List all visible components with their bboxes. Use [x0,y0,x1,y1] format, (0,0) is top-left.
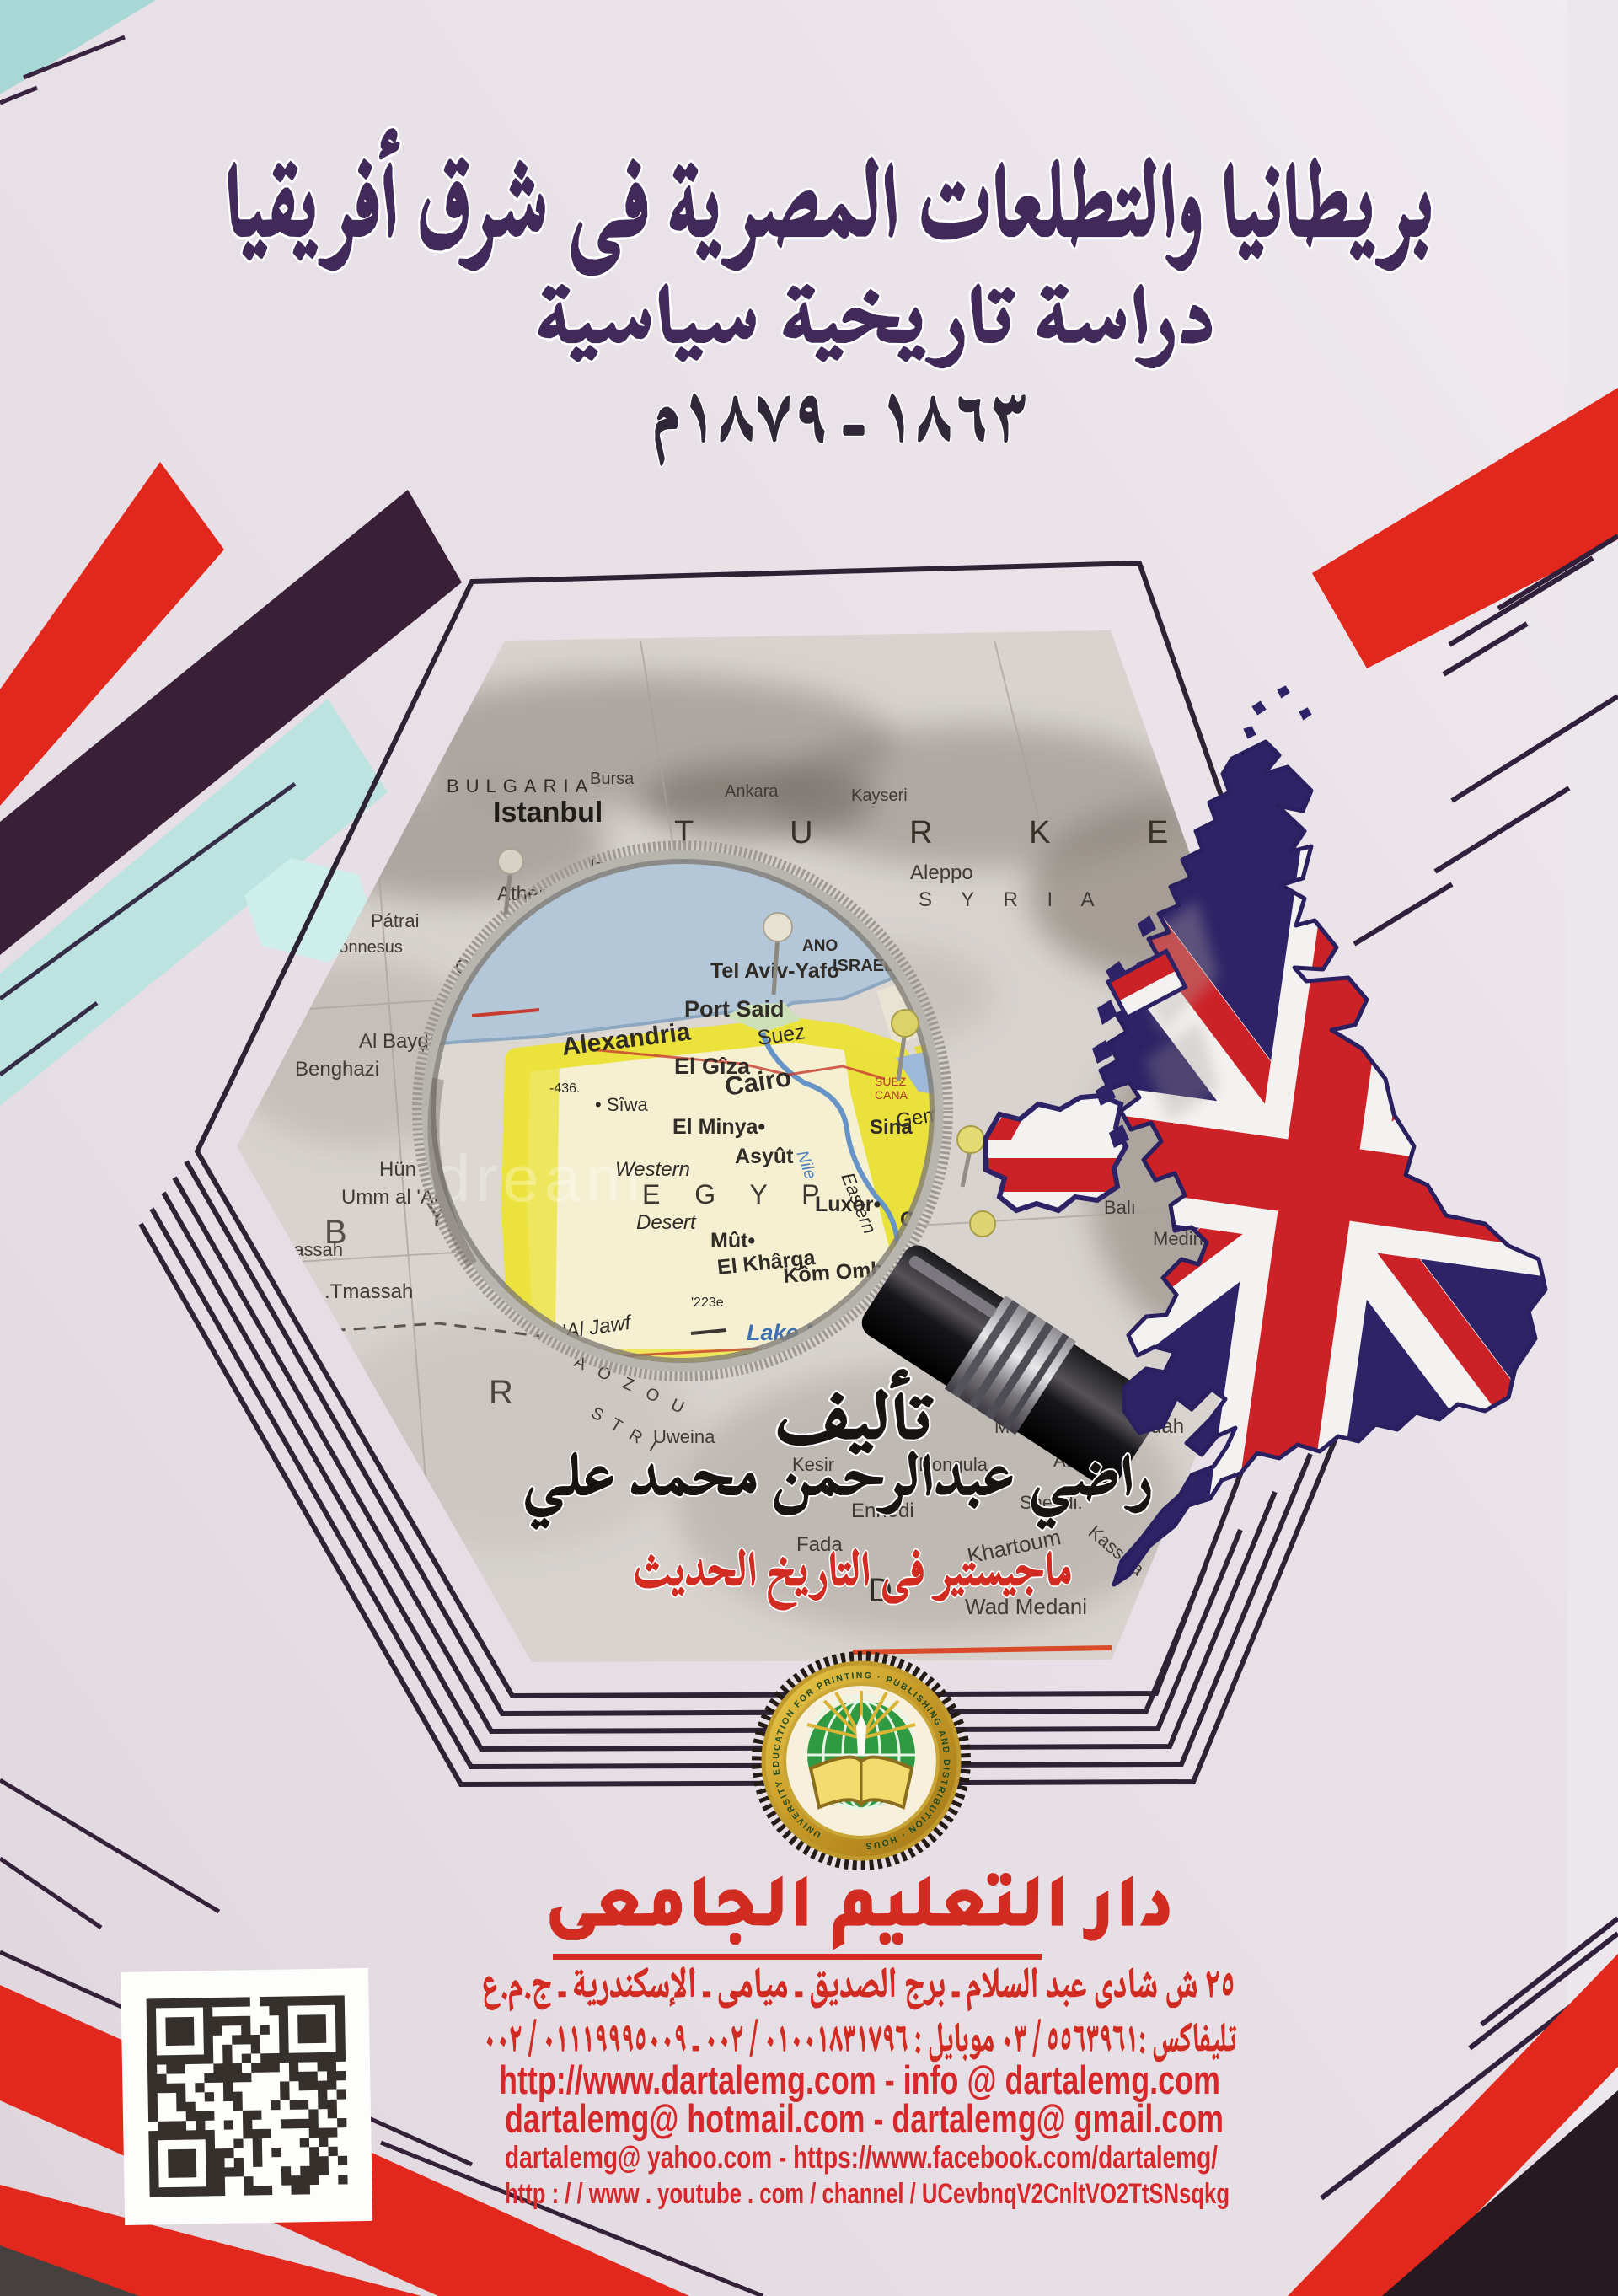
svg-text:Wad Medani: Wad Medani [965,1594,1087,1619]
svg-text:dream: dream [434,1141,646,1215]
svg-text:Aleppo: Aleppo [910,861,973,884]
svg-text:R: R [489,1374,513,1411]
svg-text:dartalemg@ hotmail.com - darta: dartalemg@ hotmail.com - dartalemg@ gmai… [505,2096,1224,2141]
svg-text:http : / / www . youtube . com: http : / / www . youtube . com / channel… [505,2178,1230,2210]
svg-text:Western: Western [615,1158,690,1181]
svg-text:Kesir: Kesir [792,1454,834,1475]
svg-text:Hün: Hün [379,1158,416,1181]
svg-text:Fada: Fada [796,1533,843,1556]
svg-text:Mût•: Mût• [710,1229,755,1253]
svg-text:El Minya•: El Minya• [672,1115,765,1139]
svg-text:Sina: Sina [870,1116,913,1139]
svg-text:S Y R I A: S Y R I A [919,888,1106,911]
svg-text:Benghazi: Benghazi [295,1058,379,1081]
svg-text:Bursa: Bursa [590,770,635,788]
svg-text:Port Said: Port Said [684,996,785,1022]
svg-text:-436.: -436. [549,1081,580,1096]
svg-text:Ankara: Ankara [725,782,779,801]
svg-text:ANO: ANO [802,937,838,955]
svg-text:• Sîwa: • Sîwa [595,1094,648,1115]
svg-text:E G Y P: E G Y P [642,1179,833,1210]
svg-text:Desert: Desert [636,1211,697,1234]
svg-text:Uweina: Uweina [653,1426,715,1447]
svg-text:Balı: Balı [1104,1197,1136,1218]
svg-text:SUEZ: SUEZ [875,1075,907,1088]
svg-text:dartalemg@ yahoo.com - https:/: dartalemg@ yahoo.com - https://www.faceb… [505,2140,1218,2175]
svg-text:CANA: CANA [875,1088,908,1102]
svg-text:Kayseri: Kayseri [851,786,908,805]
svg-text:BULGARIA: BULGARIA [447,775,594,797]
svg-text:Pátrai: Pátrai [371,910,419,931]
svg-text:'223e: '223e [691,1296,724,1310]
svg-text:Asyût: Asyût [735,1145,794,1168]
svg-text:Istanbul: Istanbul [493,797,603,829]
svg-text:.Tmassah: .Tmassah [324,1280,413,1303]
